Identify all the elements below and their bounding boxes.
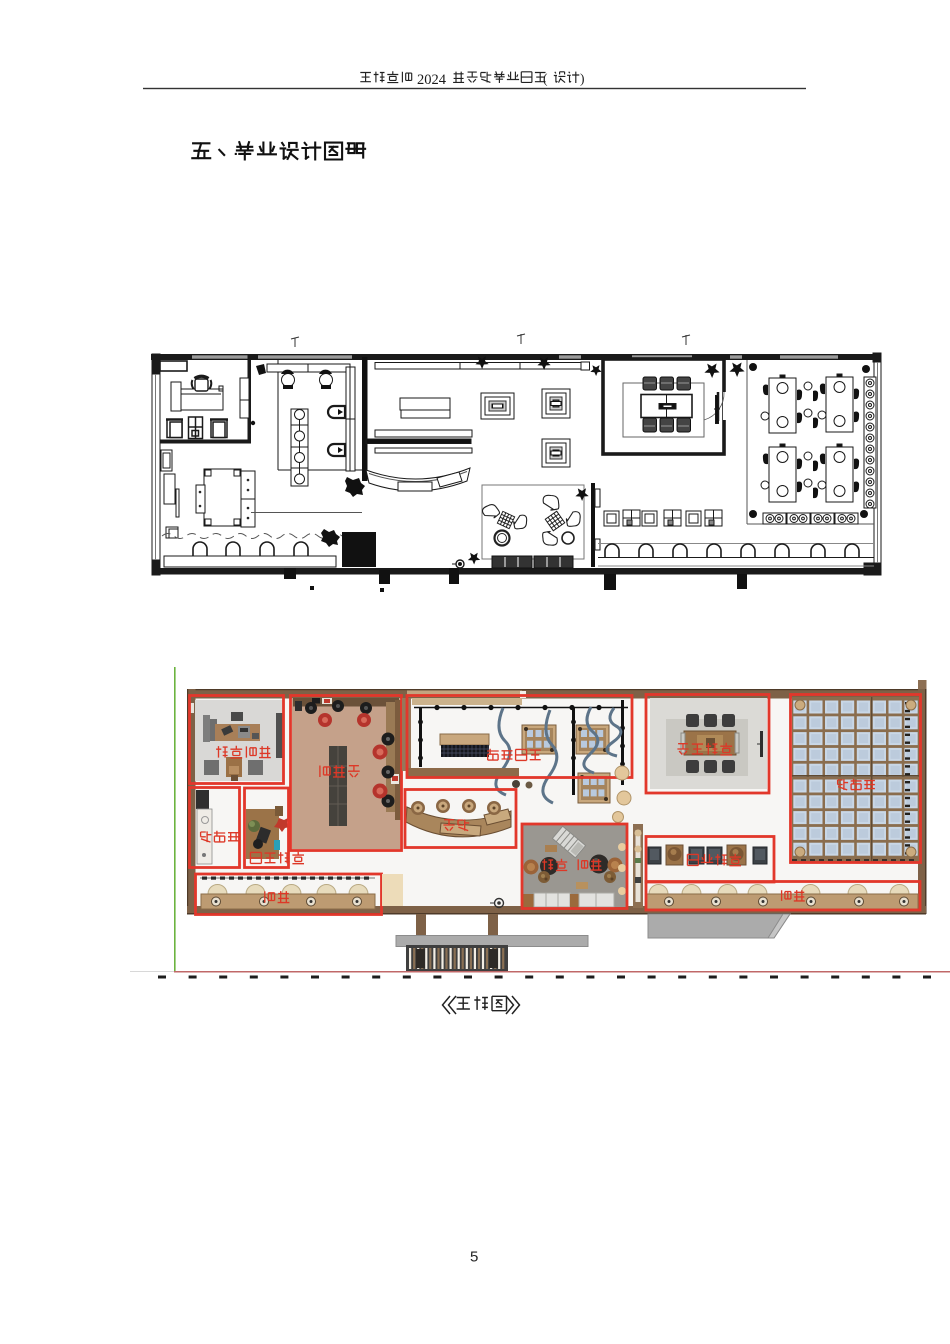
svg-text:(: ( [543,71,548,86]
svg-text:2024: 2024 [417,72,447,88]
svg-text:): ) [580,71,585,86]
svg-text:5: 5 [470,1249,478,1266]
